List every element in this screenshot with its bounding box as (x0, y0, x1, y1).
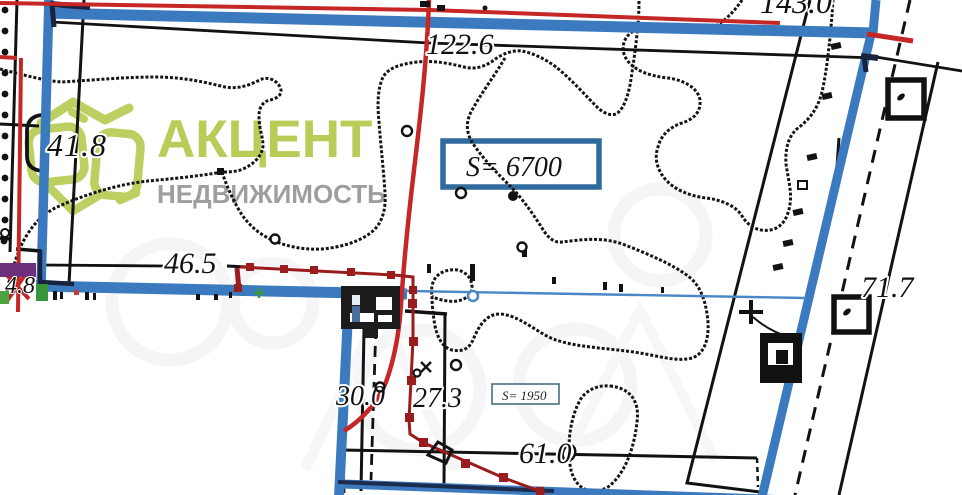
svg-text:143.0: 143.0 (760, 0, 832, 20)
svg-text:122.6: 122.6 (426, 28, 494, 61)
svg-text:61.0: 61.0 (519, 437, 572, 470)
svg-text:S= 6700: S= 6700 (466, 152, 562, 183)
svg-text:71.7: 71.7 (861, 271, 916, 304)
svg-text:НЕДВИЖИМОСТЬ: НЕДВИЖИМОСТЬ (157, 179, 386, 209)
svg-text:46.5: 46.5 (164, 247, 217, 280)
svg-text:30.0: 30.0 (335, 381, 385, 412)
svg-text:4.8: 4.8 (5, 273, 35, 299)
svg-text:41.8: 41.8 (47, 127, 107, 163)
svg-text:27.3: 27.3 (413, 383, 462, 414)
svg-text:S= 1950: S= 1950 (502, 388, 547, 403)
svg-text:АКЦЕНТ: АКЦЕНТ (157, 110, 372, 169)
